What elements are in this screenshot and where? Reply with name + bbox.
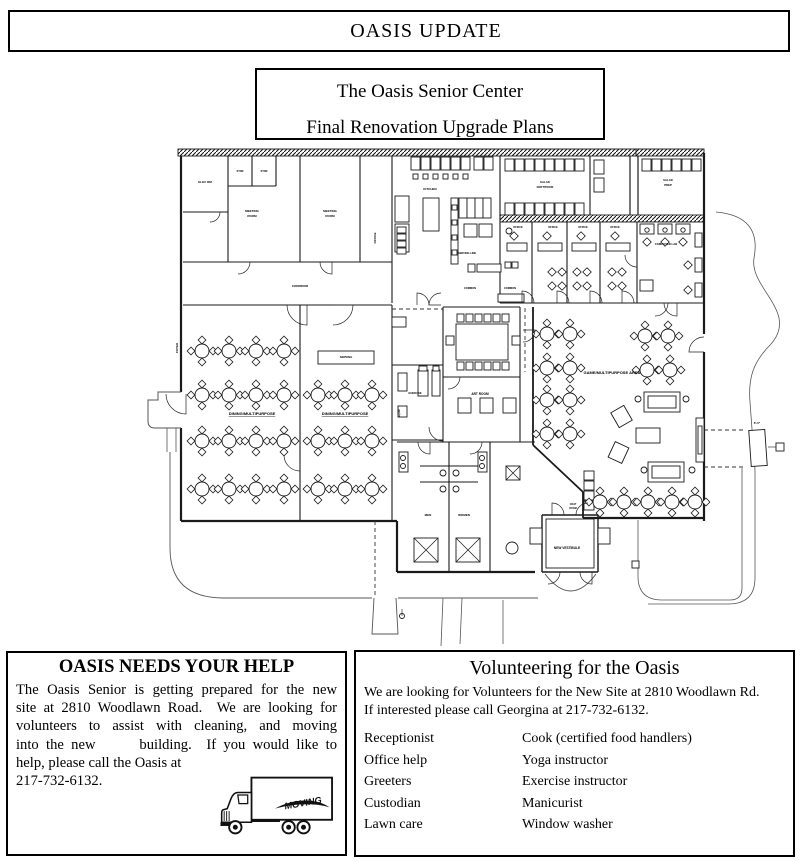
round-table <box>663 363 677 377</box>
fixture <box>652 466 680 478</box>
chair <box>269 391 277 399</box>
chair <box>368 380 376 388</box>
door-arc <box>238 262 250 274</box>
role-right: Exercise instructor <box>522 771 627 793</box>
fixture <box>611 405 632 427</box>
fixture <box>535 159 544 171</box>
room-label: EQUIP <box>397 409 401 417</box>
fixture <box>423 198 439 231</box>
room-label: OFFICE <box>610 225 620 229</box>
chair <box>596 487 604 495</box>
fixture <box>458 398 471 413</box>
chair <box>558 268 566 276</box>
chair <box>269 485 277 493</box>
fixture-circle <box>440 486 446 492</box>
fixture <box>468 264 475 272</box>
chair <box>280 402 288 410</box>
chair <box>291 437 299 445</box>
chair <box>225 474 233 482</box>
chair <box>291 485 299 493</box>
chair <box>691 487 699 495</box>
fixture <box>397 248 406 254</box>
chair <box>573 268 581 276</box>
site-line <box>460 598 462 644</box>
wall-hatched <box>178 149 640 156</box>
fixture <box>584 471 594 480</box>
fixture <box>433 366 439 371</box>
chair <box>368 448 376 456</box>
chair <box>303 391 311 399</box>
fixture <box>507 243 527 251</box>
chair <box>330 437 338 445</box>
site-line <box>545 574 596 591</box>
chair <box>368 474 376 482</box>
fixture <box>695 233 702 247</box>
fixture <box>493 314 500 322</box>
chair <box>357 391 365 399</box>
room-label: DINING/MULTIPURPOSE <box>229 411 276 416</box>
fixture <box>397 234 406 240</box>
round-table <box>311 388 325 402</box>
round-table <box>222 344 236 358</box>
door-arc <box>429 427 443 441</box>
volunteer-box: Volunteering for the Oasis We are lookin… <box>354 650 795 857</box>
room-label: PARTITIONS <box>537 185 554 189</box>
wall-hatched <box>636 149 704 156</box>
room-label: NEW VESTIBULE <box>554 546 580 550</box>
fixture <box>525 159 534 171</box>
chair <box>357 437 365 445</box>
fixture <box>535 203 544 215</box>
fixture <box>632 561 639 568</box>
fixture <box>512 336 520 345</box>
door-arc <box>429 293 441 305</box>
site-line <box>441 598 443 646</box>
fixture <box>484 157 493 170</box>
round-table <box>641 495 655 509</box>
round-table <box>593 495 607 509</box>
chair <box>643 377 651 385</box>
chair <box>314 474 322 482</box>
chair <box>241 391 249 399</box>
chair <box>668 509 676 517</box>
door-arc <box>333 305 353 325</box>
room-label: ROOM <box>325 214 335 218</box>
fixture-circle <box>689 467 695 473</box>
fixture <box>475 362 482 370</box>
chair <box>618 282 626 290</box>
chair <box>573 282 581 290</box>
door-arc <box>287 305 307 325</box>
role-right: Cook (certified food handlers) <box>522 728 692 750</box>
fixture <box>399 452 408 472</box>
fixture <box>459 198 467 218</box>
round-table <box>563 361 577 375</box>
round-table <box>311 482 325 496</box>
fixture <box>456 324 508 360</box>
fixture <box>545 159 554 171</box>
chair <box>252 358 260 366</box>
chair <box>684 286 692 294</box>
round-table <box>277 482 291 496</box>
chair <box>368 402 376 410</box>
chair <box>198 448 206 456</box>
volunteer-heading: Volunteering for the Oasis <box>364 657 785 680</box>
chair <box>566 353 574 361</box>
page: { "header": { "title": "OASIS UPDATE" },… <box>0 0 800 861</box>
site-line <box>638 468 742 600</box>
round-table <box>540 327 554 341</box>
truck-hub-rear1 <box>286 825 291 830</box>
fixture <box>397 227 406 233</box>
chair <box>566 407 574 415</box>
chair <box>644 509 652 517</box>
chair <box>225 448 233 456</box>
role-left: Custodian <box>364 793 522 815</box>
door-arc <box>284 455 300 471</box>
chair <box>225 380 233 388</box>
chair <box>241 437 249 445</box>
chair <box>684 261 692 269</box>
room-label: MEETING <box>323 209 337 213</box>
fixture <box>672 159 681 171</box>
chair <box>314 380 322 388</box>
room-label: ART ROOM <box>471 392 489 396</box>
chair <box>543 375 551 383</box>
chair <box>225 358 233 366</box>
floor-plan: ELEC RMMEETINGROOMMEETINGROOMOFFICESTORS… <box>0 140 800 652</box>
round-table <box>195 388 209 402</box>
fixture <box>594 160 604 174</box>
room-label: COMMON <box>504 286 516 290</box>
chair <box>341 474 349 482</box>
door-arc <box>580 572 592 584</box>
site-line <box>372 598 398 634</box>
fixture <box>652 159 661 171</box>
round-table <box>277 388 291 402</box>
chair <box>618 268 626 276</box>
room-label: WOMEN <box>458 513 470 517</box>
chair <box>566 441 574 449</box>
chair <box>566 419 574 427</box>
fixture <box>467 198 475 218</box>
chair <box>679 238 687 246</box>
chair <box>330 485 338 493</box>
round-table <box>365 388 379 402</box>
round-table <box>540 393 554 407</box>
fixture <box>466 314 473 322</box>
fixture <box>432 370 440 396</box>
help-text-line: site at 2810 Woodlawn Road. We are looki… <box>16 699 337 717</box>
room-label: SERVING <box>340 355 353 359</box>
fixture <box>446 336 454 345</box>
chair <box>620 487 628 495</box>
chair <box>548 282 556 290</box>
chair <box>214 391 222 399</box>
chair <box>225 426 233 434</box>
chair <box>225 402 233 410</box>
chair <box>630 332 638 340</box>
fixture <box>642 159 651 171</box>
chair <box>577 330 585 338</box>
chair <box>187 485 195 493</box>
fixture-circle <box>453 486 459 492</box>
chair <box>543 341 551 349</box>
chair <box>379 437 387 445</box>
fixture <box>411 157 420 170</box>
fixture <box>502 362 509 370</box>
help-heading: OASIS NEEDS YOUR HELP <box>16 657 337 678</box>
fixture <box>503 398 516 413</box>
room-label: COMMON <box>464 286 476 290</box>
chair <box>583 268 591 276</box>
fixture <box>608 442 629 464</box>
chair <box>664 321 672 329</box>
chair <box>187 391 195 399</box>
chair <box>643 355 651 363</box>
chair <box>608 282 616 290</box>
door-arc <box>166 394 186 414</box>
chair <box>252 448 260 456</box>
chair <box>641 343 649 351</box>
role-left: Lawn care <box>364 814 522 836</box>
role-row: Office helpYoga instructor <box>364 750 785 772</box>
room-label: SALAD <box>540 180 550 184</box>
chair <box>543 441 551 449</box>
chair <box>214 347 222 355</box>
fixture <box>584 481 594 490</box>
round-table <box>249 388 263 402</box>
round-table <box>365 434 379 448</box>
chair <box>303 437 311 445</box>
chair <box>543 353 551 361</box>
fixture-circle <box>440 470 446 476</box>
role-right: Window washer <box>522 814 613 836</box>
room-label: FOYER <box>175 342 179 353</box>
fixture-circle <box>635 396 641 402</box>
round-table <box>563 393 577 407</box>
chair <box>252 380 260 388</box>
fixture <box>698 426 702 454</box>
chair <box>241 485 249 493</box>
chair <box>379 485 387 493</box>
chair <box>357 485 365 493</box>
room-label: 6'-0" <box>754 421 761 425</box>
help-text-line: volunteers to assist with cleaning, and … <box>16 717 337 735</box>
chair <box>252 402 260 410</box>
round-table <box>222 434 236 448</box>
chair <box>668 487 676 495</box>
room-label: MEETING <box>245 209 259 213</box>
role-row: ReceptionistCook (certified food handler… <box>364 728 785 750</box>
chair <box>280 426 288 434</box>
chair <box>543 232 551 240</box>
room-label: OFFICE <box>513 225 523 229</box>
fixture <box>423 174 428 179</box>
chair <box>611 232 619 240</box>
fixture <box>598 528 610 544</box>
round-table <box>365 482 379 496</box>
fixture-circle <box>683 396 689 402</box>
chair <box>577 232 585 240</box>
fixture <box>498 294 524 302</box>
page-title: OASIS UPDATE <box>10 20 788 43</box>
chair <box>280 448 288 456</box>
role-right: Manicurist <box>522 793 583 815</box>
fixture <box>392 317 406 327</box>
chair <box>543 319 551 327</box>
site-line <box>170 452 372 598</box>
fixture <box>464 224 477 237</box>
fixture <box>452 235 457 240</box>
door-arc <box>625 255 637 267</box>
floor-plan-svg: ELEC RMMEETINGROOMMEETINGROOMOFFICESTORS… <box>0 140 800 652</box>
room-label: STOR <box>237 170 244 173</box>
fixture <box>606 243 630 251</box>
fixture-circle <box>453 470 459 476</box>
chair <box>198 358 206 366</box>
round-table <box>249 344 263 358</box>
round-table <box>195 344 209 358</box>
door-arc <box>448 377 460 389</box>
round-table <box>338 434 352 448</box>
role-row: GreetersExercise instructor <box>364 771 785 793</box>
chair <box>280 496 288 504</box>
chair <box>269 437 277 445</box>
chair <box>543 385 551 393</box>
chair <box>566 375 574 383</box>
fixture <box>515 203 524 215</box>
chair <box>543 419 551 427</box>
room-label: SERVING LINE <box>458 251 477 255</box>
chair <box>198 402 206 410</box>
chair <box>566 341 574 349</box>
help-box: OASIS NEEDS YOUR HELP The Oasis Senior i… <box>6 651 347 856</box>
room-label: CORRIDOR <box>292 284 309 288</box>
fixture <box>575 203 584 215</box>
chair <box>543 407 551 415</box>
fixture <box>575 159 584 171</box>
fixture <box>475 314 482 322</box>
room-label: OFFICE <box>373 233 377 244</box>
fixture <box>530 528 542 544</box>
chair <box>666 377 674 385</box>
fixture <box>461 157 470 170</box>
fixture <box>502 314 509 322</box>
fixture-circle <box>506 228 512 234</box>
fixture <box>419 366 427 371</box>
plan-title-line1: The Oasis Senior Center <box>257 77 603 106</box>
fixture <box>692 159 701 171</box>
room-label: ROOM <box>569 507 576 510</box>
round-table <box>563 327 577 341</box>
round-table <box>540 361 554 375</box>
round-table <box>195 434 209 448</box>
chair <box>252 496 260 504</box>
door-arc <box>210 212 220 222</box>
role-right: Yoga instructor <box>522 750 608 772</box>
round-table <box>277 434 291 448</box>
help-text-line: The Oasis Senior is getting prepared for… <box>16 681 337 699</box>
chair <box>198 496 206 504</box>
fixture <box>565 203 574 215</box>
room-label: MEN <box>425 513 432 517</box>
fixture <box>395 196 409 222</box>
room-label: STOR <box>261 170 268 173</box>
round-table <box>311 434 325 448</box>
chair <box>280 358 288 366</box>
fixture-circle <box>506 542 518 554</box>
chair <box>198 474 206 482</box>
round-table <box>277 344 291 358</box>
fixture <box>484 314 491 322</box>
round-table <box>661 329 675 343</box>
fixture <box>413 174 418 179</box>
chair <box>558 282 566 290</box>
fixture <box>443 174 448 179</box>
room-label: KITCHEN <box>423 187 436 191</box>
site-line <box>148 392 181 428</box>
fixture <box>433 174 438 179</box>
fixture <box>538 243 562 251</box>
fixture <box>636 428 660 443</box>
door-arc <box>552 503 564 515</box>
wall-hatched <box>500 215 704 222</box>
door-arc <box>548 572 560 584</box>
volunteer-intro: We are looking for Volunteers for the Ne… <box>364 684 785 720</box>
fixture <box>451 157 460 170</box>
fixture <box>525 203 534 215</box>
fixture <box>505 203 514 215</box>
fixture <box>484 362 491 370</box>
chair <box>577 396 585 404</box>
chair <box>280 474 288 482</box>
chair <box>291 347 299 355</box>
fixture <box>555 203 564 215</box>
door-arc <box>418 442 430 454</box>
door-arc <box>689 337 704 352</box>
fixture <box>477 264 501 272</box>
chair <box>677 366 685 374</box>
fixture <box>572 243 596 251</box>
fixture <box>662 159 671 171</box>
chair <box>596 509 604 517</box>
chair <box>566 385 574 393</box>
truck-hub-rear2 <box>301 825 306 830</box>
fixture <box>505 262 511 268</box>
chair <box>198 336 206 344</box>
chair <box>314 448 322 456</box>
chair <box>566 319 574 327</box>
fixture <box>545 203 554 215</box>
chair <box>368 426 376 434</box>
fixture <box>648 396 676 408</box>
chair <box>643 238 651 246</box>
chair <box>252 474 260 482</box>
round-table <box>222 388 236 402</box>
fixture <box>421 157 430 170</box>
fixture <box>475 198 483 218</box>
fixture <box>512 262 518 268</box>
moving-truck-icon: MOVING <box>213 769 337 847</box>
fixture <box>640 280 653 291</box>
chair <box>214 485 222 493</box>
round-table <box>338 482 352 496</box>
round-table <box>665 495 679 509</box>
chair <box>225 336 233 344</box>
fixture-circle <box>641 467 647 473</box>
room-label: ROOM <box>247 214 257 218</box>
